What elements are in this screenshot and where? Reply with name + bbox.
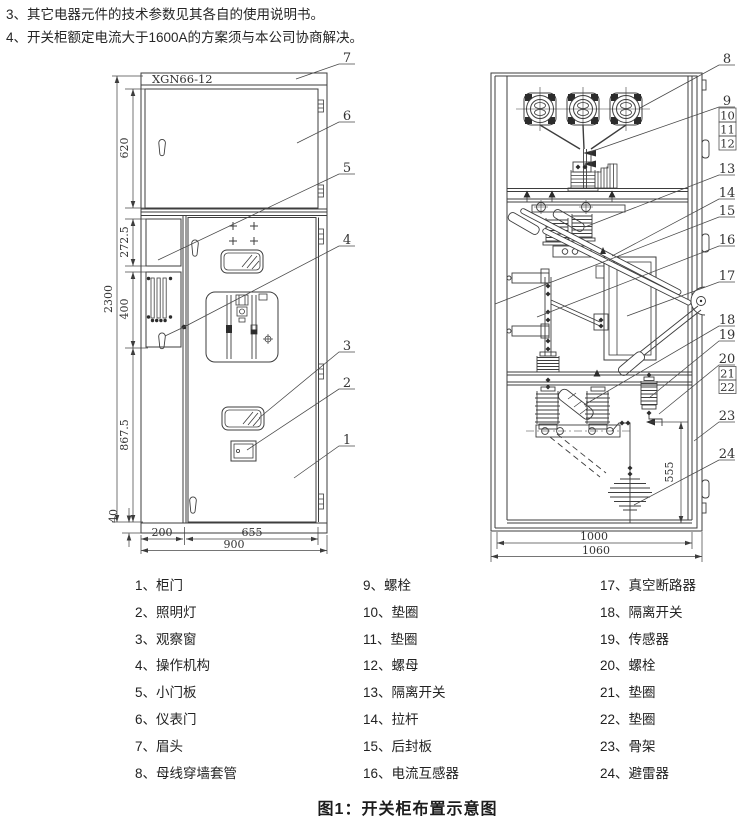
callout-5: 5 [343, 161, 351, 176]
legend-item: 22、垫圈 [600, 707, 696, 734]
legend-item: 17、真空断路器 [600, 573, 696, 600]
partition-shelf-2 [507, 370, 692, 386]
callout-14: 14 [719, 186, 736, 201]
legend-item: 23、骨架 [600, 734, 696, 761]
legend-item: 8、母线穿墙套管 [135, 761, 237, 788]
pull-rod [520, 208, 692, 306]
keyhole-icon [159, 139, 166, 155]
legend-column-2: 9、螺栓 10、垫圈 11、垫圈 12、螺母 13、隔离开关 14、拉杆 15、… [363, 573, 459, 787]
support-insulator [568, 164, 617, 192]
dim-200: 200 [152, 526, 173, 539]
callout-15: 15 [719, 204, 736, 219]
callout-24: 24 [719, 447, 736, 462]
legend-item: 15、后封板 [363, 734, 459, 761]
bushing-icon [516, 87, 650, 131]
callout-6: 6 [343, 109, 351, 124]
dim-1060: 1060 [582, 544, 610, 557]
page: 3、其它电器元件的技术参数见其各自的使用说明书。 4、开关柜额定电流大于1600… [0, 0, 743, 823]
model-label: XGN66-12 [152, 72, 213, 86]
legend-item: 21、垫圈 [600, 680, 696, 707]
legend-column-1: 1、柜门 2、照明灯 3、观察窗 4、操作机构 5、小门板 6、仪表门 7、眉头… [135, 573, 237, 787]
keyhole-icon [159, 333, 166, 349]
callout-18: 18 [719, 313, 736, 328]
floor [507, 520, 692, 523]
legend-item: 18、隔离开关 [600, 600, 696, 627]
sensor [641, 373, 657, 416]
dim-655: 655 [242, 526, 263, 539]
observation-window [222, 407, 264, 430]
lamp-window [231, 441, 256, 461]
legend-item: 11、垫圈 [363, 627, 459, 654]
callout-16: 16 [719, 233, 736, 248]
legend-item: 3、观察窗 [135, 627, 237, 654]
legend-item: 9、螺栓 [363, 573, 459, 600]
dim-867-5: 867.5 [118, 419, 131, 451]
current-transformer [507, 269, 608, 372]
callout-21: 21 [720, 367, 735, 381]
legend-item: 16、电流互感器 [363, 761, 459, 788]
legend-item: 14、拉杆 [363, 707, 459, 734]
operating-mechanism [206, 292, 278, 362]
figure-caption: 图1：开关柜布置示意图 [235, 795, 580, 819]
legend-item: 4、操作机构 [135, 653, 237, 680]
dim-400: 400 [118, 299, 131, 320]
window [221, 250, 263, 273]
dim-40: 40 [107, 509, 120, 523]
callout-3: 3 [343, 339, 351, 354]
vent-slots [151, 278, 166, 318]
dim-555: 555 [663, 462, 676, 483]
legend-item: 5、小门板 [135, 680, 237, 707]
callout-23: 23 [719, 409, 736, 424]
callout-20: 20 [719, 352, 736, 367]
keyhole-icon [190, 497, 197, 513]
side-view-leaders [495, 65, 736, 505]
callout-7: 7 [343, 51, 351, 66]
busbar-connection [540, 125, 626, 149]
dim-620: 620 [118, 138, 131, 159]
dim-272-5: 272.5 [118, 226, 131, 258]
lower-disconnect-switch [526, 378, 632, 478]
legend-item: 2、照明灯 [135, 600, 237, 627]
dim-1000: 1000 [580, 530, 608, 543]
front-view-dimensions [112, 76, 327, 554]
plus-marks [229, 222, 258, 245]
dim-2300: 2300 [102, 285, 115, 313]
legend-column-3: 17、真空断路器 18、隔离开关 19、传感器 20、螺栓 21、垫圈 22、垫… [600, 573, 696, 787]
arrester [608, 466, 652, 524]
callout-17: 17 [719, 269, 736, 284]
legend-item: 7、眉头 [135, 734, 237, 761]
legend-item: 12、螺母 [363, 653, 459, 680]
small-door-plate [146, 219, 181, 266]
side-view [491, 73, 709, 531]
legend-item: 1、柜门 [135, 573, 237, 600]
callout-13: 13 [719, 162, 736, 177]
callout-1: 1 [343, 433, 351, 448]
legend-item: 6、仪表门 [135, 707, 237, 734]
bolt-marks [576, 165, 588, 170]
legend-item: 13、隔离开关 [363, 680, 459, 707]
callout-22: 22 [720, 380, 735, 394]
legend-item: 24、避雷器 [600, 761, 696, 788]
callout-10: 10 [720, 109, 735, 123]
callout-9: 9 [723, 94, 731, 109]
callout-8: 8 [723, 52, 731, 67]
callout-4: 4 [343, 233, 351, 248]
legend-item: 10、垫圈 [363, 600, 459, 627]
hinge-icon [319, 229, 324, 509]
partition-shelf [507, 189, 688, 213]
legend-item: 19、传感器 [600, 627, 696, 654]
callout-11: 11 [720, 123, 735, 137]
meter-door [145, 89, 318, 208]
legend-item: 20、螺栓 [600, 653, 696, 680]
callout-2: 2 [343, 376, 351, 391]
callout-19: 19 [719, 328, 736, 343]
callout-12: 12 [720, 137, 735, 151]
dim-900: 900 [224, 538, 245, 551]
